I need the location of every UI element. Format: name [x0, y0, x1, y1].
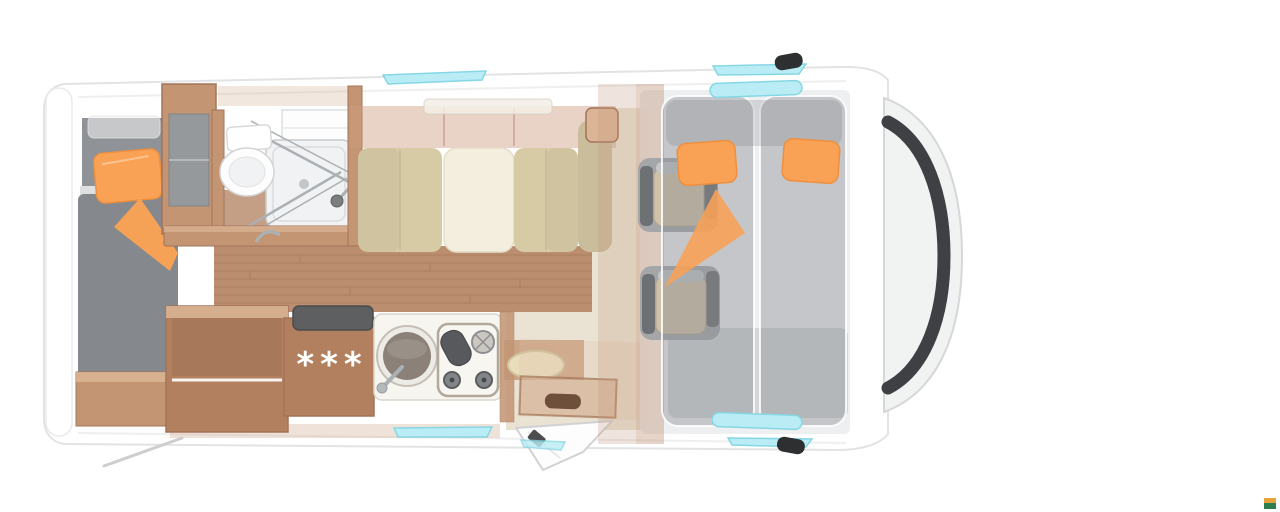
cab-bed-pillow-right — [782, 138, 841, 184]
kitchen-counter — [166, 306, 288, 432]
rear-bumper — [46, 88, 72, 436]
vanity-shelf — [164, 226, 354, 246]
watermark-bottom-half — [1264, 503, 1276, 509]
watermark-top-half — [1264, 498, 1276, 503]
bed-pillow — [93, 148, 163, 204]
wardrobe — [162, 84, 216, 234]
bed-foot-bench-top — [76, 372, 180, 382]
side-window-kitchen — [394, 427, 492, 437]
roof-window-cab — [710, 80, 802, 97]
cab-door-window-bottom — [712, 412, 802, 429]
fridge-top-vent — [293, 306, 373, 330]
wood-floor — [214, 246, 592, 312]
dinette — [348, 86, 618, 252]
stove — [437, 324, 498, 396]
roof-window-bed — [88, 116, 160, 138]
floorplan-render: *** — [0, 0, 1280, 512]
roof-window-habitation — [424, 99, 552, 114]
cab — [598, 84, 850, 444]
overhead-locker-bathroom — [218, 86, 350, 106]
dinette-left-bench — [358, 148, 442, 252]
stove-kettle — [472, 331, 494, 353]
toilet — [220, 124, 274, 196]
floorplan-canvas: *** — [0, 0, 1280, 512]
step-handle-hole — [545, 393, 582, 409]
fridge-rating-stars: *** — [296, 345, 367, 385]
dinette-table — [444, 148, 514, 252]
shower — [266, 140, 352, 228]
front-end — [884, 98, 962, 412]
cab-bed-pillow-left — [677, 140, 738, 186]
shower-drain — [299, 179, 309, 189]
watermark — [1264, 498, 1276, 509]
fridge-freezer: *** — [284, 306, 374, 416]
